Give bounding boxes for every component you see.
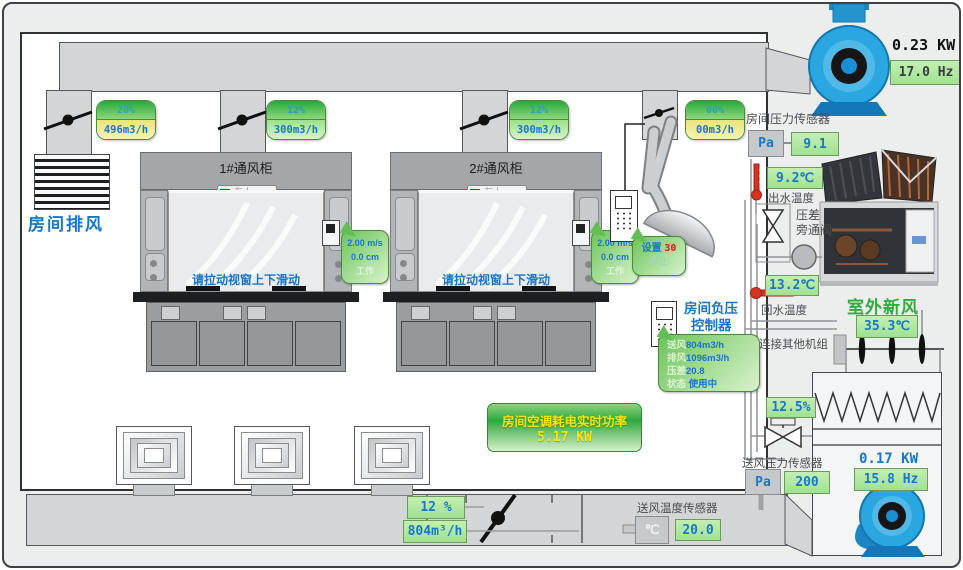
room-ac-power-button[interactable]: 房间空调耗电实时功率 5.17 KW — [487, 403, 642, 452]
power-button-title: 房间空调耗电实时功率 — [502, 411, 627, 430]
npc-supply-label: 送风 — [667, 340, 686, 351]
base-vent — [223, 306, 242, 320]
airflow-value: 00m3/h — [686, 119, 744, 139]
chw-control-valve[interactable] — [765, 418, 801, 447]
npc-state-value: 使用中 — [689, 379, 718, 390]
supply-fan-power: 0.17 KW — [859, 451, 918, 467]
supply-duct-transition — [785, 494, 812, 556]
airflow-value: 300m3/h — [267, 119, 325, 139]
damper-open-pct: 20% — [97, 101, 155, 119]
cabinet-door — [151, 321, 197, 366]
supply-temp-value: 20.0 — [675, 519, 721, 541]
airflow-value: 300m3/h — [510, 119, 568, 139]
return-water-temp-label: 回水温度 — [761, 302, 807, 318]
branch-flow-label-1: 20% 496m3/h — [96, 100, 156, 140]
cabinet-door — [295, 321, 341, 366]
face-velocity-value: 2.00 m/s — [342, 236, 388, 250]
column-knob — [150, 274, 157, 281]
sash-stop — [186, 286, 220, 291]
hood-base-cabinet — [396, 302, 596, 372]
cabinet-door — [497, 321, 543, 366]
water-pump[interactable] — [792, 245, 816, 269]
supply-damper-leaders — [463, 507, 579, 531]
sash-window[interactable]: 请拉动视窗上下滑动 — [168, 190, 324, 292]
hood-worktop — [133, 292, 359, 302]
sash-window[interactable]: 请拉动视窗上下滑动 — [418, 190, 574, 292]
damper-open-pct: 12% — [267, 101, 325, 119]
base-vent — [473, 306, 492, 320]
cabinet-door — [449, 321, 495, 366]
branch-flow-label-3: 12% 300m3/h — [509, 100, 569, 140]
exhaust-duct-transition — [766, 48, 810, 94]
branch-flow-label-4: 00% 00m3/h — [685, 100, 745, 140]
ahu-coil — [815, 393, 940, 421]
hood-base-cabinet — [146, 302, 346, 372]
branch-flow-label-2: 12% 300m3/h — [266, 100, 326, 140]
npc-diff-label: 压差 — [667, 366, 686, 377]
hvac-scada-screen: 房间排风 — [0, 0, 963, 570]
exhaust-fan-icon[interactable] — [809, 4, 889, 116]
supply-fan-icon[interactable] — [855, 484, 925, 557]
base-vent — [247, 306, 266, 320]
column-knob — [150, 260, 157, 267]
screen-frame: 房间排风 — [2, 2, 961, 568]
npc-title-line2: 控制器 — [691, 314, 732, 334]
hood-1-status-bubble: 2.00 m/s 0.0 cm 工作 — [341, 230, 389, 284]
column-panel — [395, 197, 415, 251]
column-knob — [400, 260, 407, 267]
npc-state-label: 状态 — [667, 379, 686, 390]
set-value: 30 — [664, 243, 676, 254]
hood-title: 1#通风柜 — [141, 158, 351, 177]
cabinet-door — [545, 321, 591, 366]
sash-stop — [522, 286, 556, 291]
airflow-value: 496m3/h — [97, 119, 155, 139]
outdoor-air-temp: 35.3℃ — [856, 315, 918, 338]
return-water-temp-value: 13.2℃ — [765, 275, 819, 296]
controller-buttons — [615, 211, 631, 231]
cabinet-door — [247, 321, 293, 366]
base-vent — [161, 306, 180, 320]
supply-temp-sensor-label: 送风温度传感器 — [637, 500, 718, 516]
supply-damper[interactable] — [481, 495, 515, 542]
npc-exhaust-label: 排风 — [667, 353, 686, 364]
snorkel-setting-bubble[interactable]: 设置 30 停止 — [632, 236, 686, 276]
cabinet-door — [401, 321, 447, 366]
room-pressure-value: 9.1 — [791, 132, 839, 156]
column-panel — [145, 197, 165, 251]
fume-hood-1: 1#通风柜 有人 — [140, 152, 352, 374]
supply-water-temp-value: 9.2℃ — [767, 167, 823, 189]
damper-open-pct: 00% — [686, 101, 744, 119]
exhaust-fan-power: 0.23 KW — [892, 36, 955, 54]
supply-pressure-value: 200 — [784, 471, 830, 494]
exhaust-damper-3[interactable] — [460, 112, 508, 129]
controller-display — [656, 307, 673, 320]
controller-display — [615, 196, 632, 209]
power-button-value: 5.17 KW — [537, 430, 592, 445]
face-velocity-sensor[interactable] — [572, 220, 590, 246]
set-label: 设置 — [642, 243, 662, 254]
supply-damper-pct: 12 % — [407, 496, 465, 519]
chw-valve-pct: 12.5% — [766, 397, 816, 418]
bypass-valve-label-2: 旁通阀 — [796, 221, 832, 238]
link-other-units-label: 连接其他机组 — [759, 336, 828, 352]
supply-airflow-value: 804m³/h — [403, 520, 467, 543]
supply-temp-unit: ℃ — [635, 516, 669, 544]
column-knob — [400, 274, 407, 281]
exhaust-damper-1[interactable] — [44, 112, 92, 129]
supply-pressure-unit: Pa — [745, 469, 781, 495]
snorkel-control-wire — [625, 124, 645, 190]
supply-water-temp-label: 出水温度 — [768, 190, 814, 206]
npc-exhaust-value: 1096m3/h — [686, 353, 729, 364]
face-velocity-sensor[interactable] — [322, 220, 340, 246]
sash-stop — [272, 286, 306, 291]
damper-open-pct: 12% — [510, 101, 568, 119]
exhaust-fan-frequency: 17.0 Hz — [890, 60, 961, 85]
hood-worktop — [383, 292, 609, 302]
room-pressure-sensor-label: 房间压力传感器 — [746, 110, 830, 127]
sash-height-value: 0.0 cm — [342, 250, 388, 264]
hood-title: 2#通风柜 — [391, 158, 601, 177]
exhaust-damper-2[interactable] — [218, 112, 266, 129]
fume-hood-2: 2#通风柜 有人 — [390, 152, 602, 374]
supply-water-thermometer-icon — [752, 164, 763, 200]
hood-status: 工作 — [342, 264, 388, 278]
stop-label: 停止 — [633, 256, 685, 270]
npc-status-bubble: 送风804m3/h 排风1096m3/h 压差20.8 状态 使用中 — [658, 334, 760, 392]
cabinet-door — [199, 321, 245, 366]
bypass-valve[interactable] — [756, 204, 790, 262]
npc-diff-value: 20.8 — [686, 366, 705, 377]
ahu-baffles — [813, 429, 941, 445]
npc-supply-value: 804m3/h — [686, 340, 724, 351]
base-vent — [497, 306, 516, 320]
base-vent — [411, 306, 430, 320]
sash-stop — [436, 286, 470, 291]
room-pressure-unit: Pa — [748, 130, 784, 157]
supply-fan-frequency: 15.8 Hz — [854, 468, 928, 491]
